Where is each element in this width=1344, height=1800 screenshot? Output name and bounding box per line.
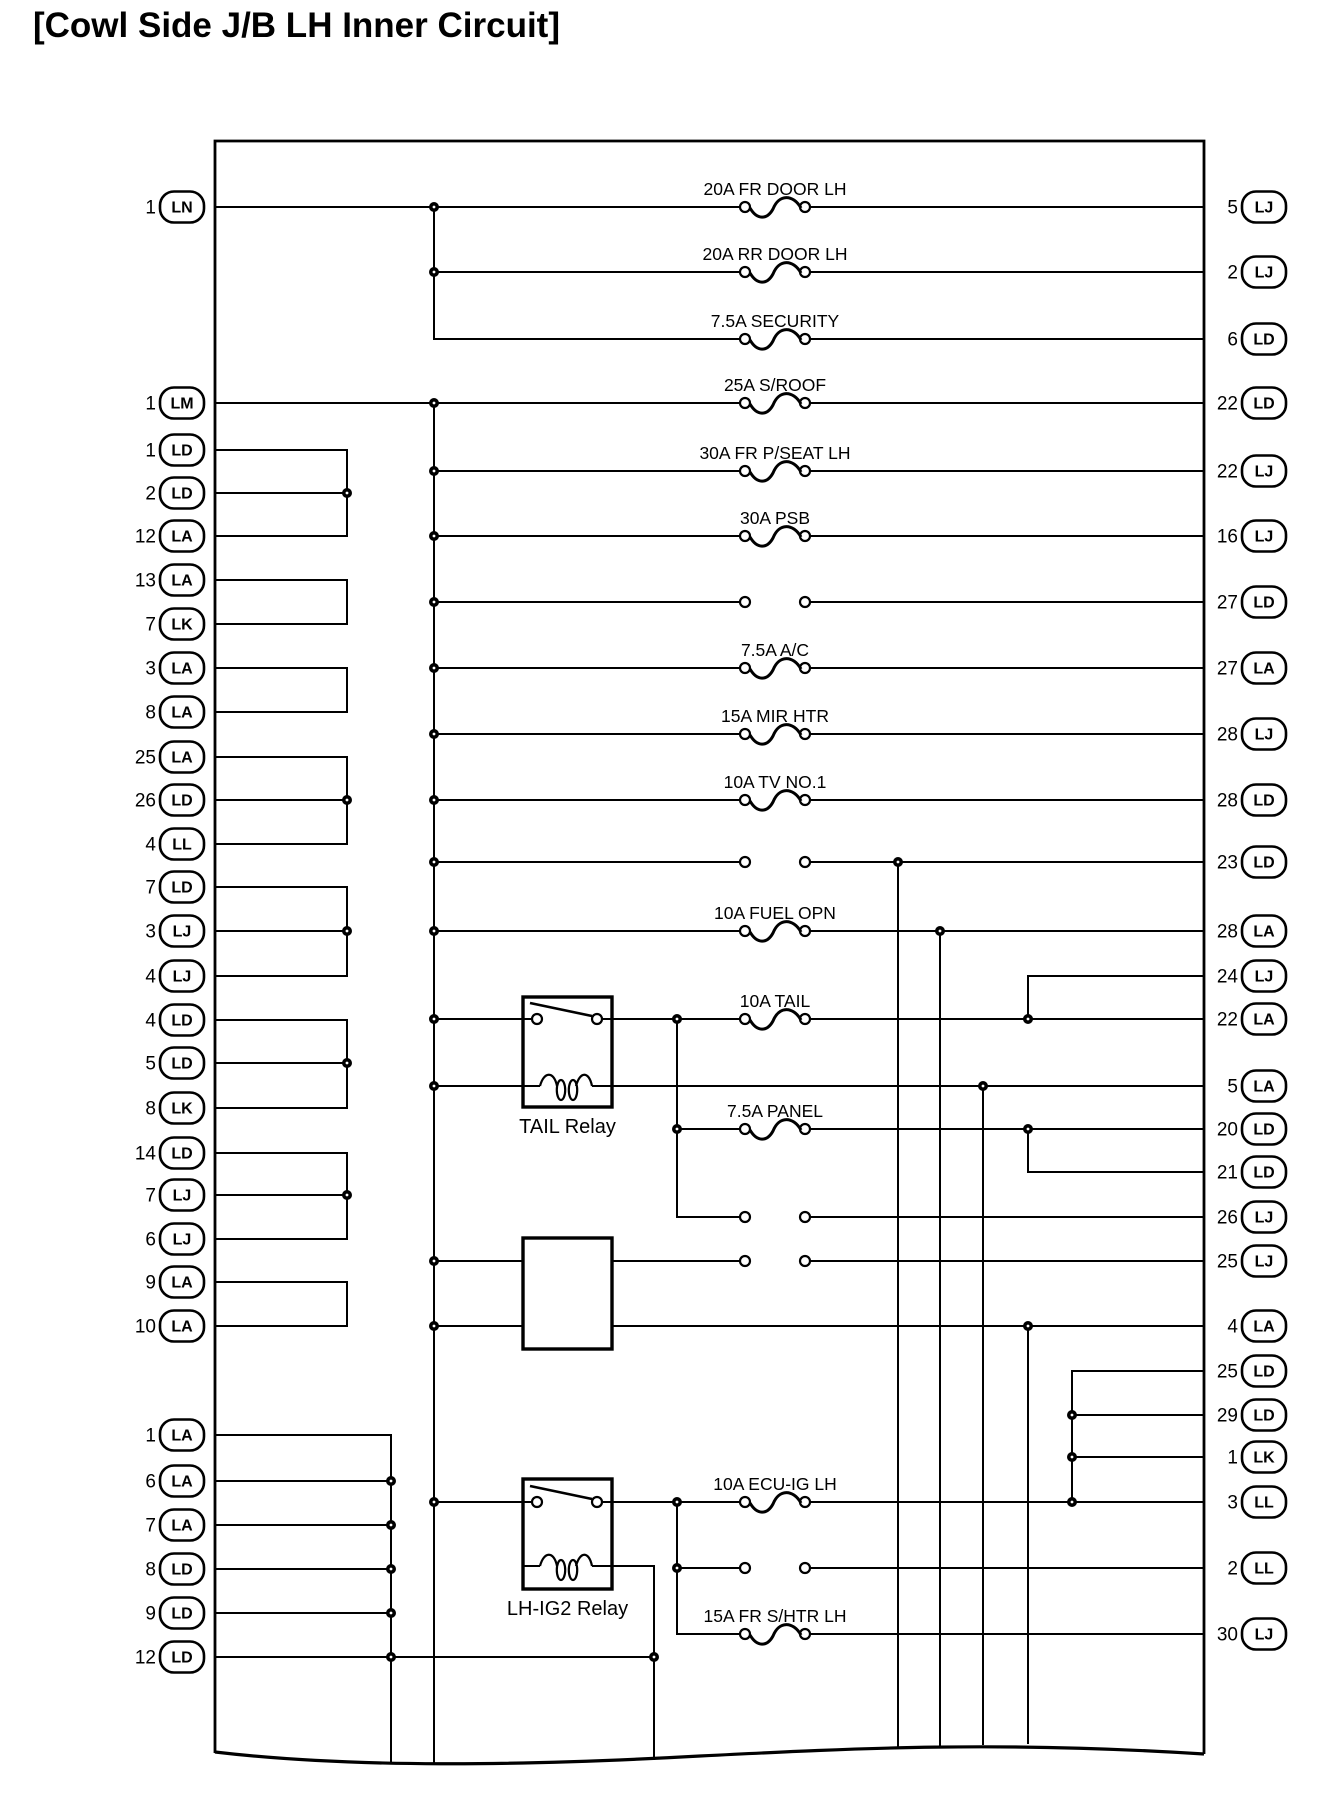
- connector-right-5-LJ: 5LJ: [1227, 192, 1286, 223]
- connector-left-7-LJ: 7LJ: [145, 1180, 204, 1211]
- junction-dot: [429, 1321, 439, 1331]
- connector-pin-number: 14: [135, 1144, 157, 1165]
- connector-code: LJ: [173, 1188, 192, 1205]
- connector-right-2-LJ: 2LJ: [1227, 257, 1286, 288]
- connector-right-1-LK: 1LK: [1227, 1442, 1286, 1473]
- junction-dot-center: [390, 1612, 393, 1615]
- connector-pin-number: 8: [145, 1099, 156, 1120]
- junction-dot: [429, 466, 439, 476]
- contact-circle: [740, 1563, 750, 1573]
- contact-circle: [800, 597, 810, 607]
- junction-dot-center: [676, 1501, 679, 1504]
- junction-dot: [649, 1652, 659, 1662]
- connector-code: LA: [171, 1474, 193, 1491]
- connector-code: LD: [1253, 1122, 1274, 1139]
- connector-left-12-LA: 12LA: [135, 521, 204, 552]
- junction-dot-center: [433, 733, 436, 736]
- junction-dot-center: [1027, 1018, 1030, 1021]
- fuse-element: [750, 1010, 801, 1030]
- contact-pair: [740, 1256, 810, 1266]
- contact-circle: [740, 1014, 750, 1024]
- connector-code: LA: [1253, 1079, 1275, 1096]
- connector-pin-number: 2: [145, 484, 156, 505]
- connector-pin-number: 28: [1217, 922, 1238, 943]
- connector-code: LJ: [1255, 200, 1274, 217]
- junction-dot: [1023, 1014, 1033, 1024]
- connector-code: LA: [1253, 661, 1275, 678]
- fuse-label: 25A S/ROOF: [724, 375, 826, 395]
- connector-pin-number: 7: [145, 1186, 156, 1207]
- fuse-element: [750, 1120, 801, 1140]
- junction-dot: [429, 857, 439, 867]
- connector-pin-number: 1: [145, 1426, 156, 1447]
- contact-circle: [740, 729, 750, 739]
- connector-pin-number: 7: [145, 615, 156, 636]
- connector-pin-number: 4: [1227, 1317, 1238, 1338]
- connector-code: LJ: [1255, 969, 1274, 986]
- connector-left-1-LN: 1LN: [145, 192, 204, 223]
- connector-left-1-LD: 1LD: [145, 435, 204, 466]
- connector-pin-number: 9: [145, 1604, 156, 1625]
- junction-dot: [429, 1256, 439, 1266]
- fuse-element: [750, 394, 801, 414]
- contact-circle: [740, 398, 750, 408]
- contact-circle: [740, 267, 750, 277]
- junction-dot-center: [433, 667, 436, 670]
- connector-left-8-LA: 8LA: [145, 697, 204, 728]
- connector-code: LD: [1253, 1165, 1274, 1182]
- connector-right-27-LD: 27LD: [1217, 587, 1286, 618]
- connector-right-22-LD: 22LD: [1217, 388, 1286, 419]
- junction-dot: [429, 398, 439, 408]
- connector-code: LA: [1253, 1012, 1275, 1029]
- junction-dot-center: [433, 206, 436, 209]
- connector-left-1-LM: 1LM: [145, 388, 204, 419]
- relay-lh-ig2-relay: LH-IG2 Relay: [507, 1479, 628, 1620]
- connector-code: LD: [1253, 332, 1274, 349]
- junction-block-torn-edge: [215, 1747, 1204, 1764]
- fuse: 10A TAIL: [740, 991, 811, 1029]
- connector-pin-number: 3: [145, 659, 156, 680]
- connector-right-16-LJ: 16LJ: [1217, 521, 1286, 552]
- connector-code: LJ: [1255, 727, 1274, 744]
- connector-code: LD: [171, 1650, 192, 1667]
- junction-dot-center: [897, 861, 900, 864]
- page: [Cowl Side J/B LH Inner Circuit] 20A FR …: [0, 0, 1344, 1800]
- connector-code: LD: [171, 443, 192, 460]
- junction-dot-center: [982, 1085, 985, 1088]
- connector-right-20-LD: 20LD: [1217, 1114, 1286, 1145]
- junction-dot: [429, 267, 439, 277]
- fuse-label: 7.5A PANEL: [727, 1101, 823, 1121]
- contact-circle: [740, 663, 750, 673]
- relay-coil-arc: [576, 1075, 592, 1086]
- connector-pin-number: 12: [135, 1648, 156, 1669]
- connector-left-7-LA: 7LA: [145, 1510, 204, 1541]
- relay-coil-arc: [576, 1555, 592, 1566]
- connector-code: LD: [1253, 595, 1274, 612]
- fuse-label: 10A FUEL OPN: [714, 903, 836, 923]
- connector-pin-number: 4: [145, 967, 156, 988]
- contact-pair: [740, 1212, 810, 1222]
- junction-dot-center: [433, 1018, 436, 1021]
- connector-right-3-LL: 3LL: [1227, 1487, 1286, 1518]
- connector-left-13-LA: 13LA: [135, 565, 204, 596]
- fuse-element: [750, 527, 801, 547]
- fuse-label: 10A TV NO.1: [724, 772, 827, 792]
- connector-right-28-LD: 28LD: [1217, 785, 1286, 816]
- junction-dot-center: [676, 1018, 679, 1021]
- relay-tail-relay: TAIL Relay: [519, 997, 616, 1138]
- junction-dot-center: [346, 1062, 349, 1065]
- fuse: 15A FR S/HTR LH: [704, 1606, 847, 1644]
- connector-pin-number: 21: [1217, 1163, 1238, 1184]
- connector-pin-number: 27: [1217, 659, 1238, 680]
- connector-code: LD: [171, 1056, 192, 1073]
- connector-code: LA: [171, 573, 193, 590]
- fuse: 10A ECU-IG LH: [713, 1474, 837, 1512]
- junction-dot: [386, 1564, 396, 1574]
- connector-pin-number: 5: [1227, 198, 1238, 219]
- fuse-element: [750, 198, 801, 218]
- relay-label: LH-IG2 Relay: [507, 1598, 628, 1620]
- contact-circle: [800, 1256, 810, 1266]
- fuse-label: 20A FR DOOR LH: [704, 179, 847, 199]
- connector-left-14-LD: 14LD: [135, 1138, 204, 1169]
- connector-code: LJ: [173, 969, 192, 986]
- connector-pin-number: 25: [1217, 1362, 1238, 1383]
- connector-pin-number: 25: [1217, 1252, 1238, 1273]
- connector-pin-number: 5: [1227, 1077, 1238, 1098]
- connector-pin-number: 4: [145, 835, 156, 856]
- connector-code: LL: [1254, 1495, 1274, 1512]
- connector-pin-number: 22: [1217, 462, 1238, 483]
- junction-dot: [672, 1497, 682, 1507]
- connector-code: LL: [172, 837, 192, 854]
- contact-circle: [740, 795, 750, 805]
- junction-dot: [1067, 1410, 1077, 1420]
- junction-dot-center: [390, 1480, 393, 1483]
- connector-pin-number: 1: [145, 394, 156, 415]
- junction-dot-center: [1027, 1325, 1030, 1328]
- connector-right-26-LJ: 26LJ: [1217, 1202, 1286, 1233]
- connector-left-4-LD: 4LD: [145, 1005, 204, 1036]
- fuse-element: [750, 263, 801, 283]
- junction-dot: [1067, 1452, 1077, 1462]
- connector-code: LJ: [1255, 265, 1274, 282]
- connector-right-22-LJ: 22LJ: [1217, 456, 1286, 487]
- connector-right-30-LJ: 30LJ: [1217, 1619, 1286, 1650]
- junction-dot: [672, 1563, 682, 1573]
- fuse-label: 10A ECU-IG LH: [713, 1474, 837, 1494]
- junction-dot: [429, 663, 439, 673]
- junction-dot-center: [433, 271, 436, 274]
- connector-code: LA: [171, 1518, 193, 1535]
- junction-dot: [386, 1476, 396, 1486]
- connector-pin-number: 6: [145, 1472, 156, 1493]
- connector-code: LK: [1253, 1450, 1275, 1467]
- connector-code: LD: [1253, 1364, 1274, 1381]
- junction-dot-center: [433, 601, 436, 604]
- fuse: 30A FR P/SEAT LH: [699, 443, 850, 481]
- relay-coil-loop: [557, 1080, 565, 1100]
- connector-pin-number: 5: [145, 1054, 156, 1075]
- connector-code: LA: [171, 750, 193, 767]
- junction-dot: [978, 1081, 988, 1091]
- connector-right-6-LD: 6LD: [1227, 324, 1286, 355]
- junction-dot-center: [346, 930, 349, 933]
- connector-pin-number: 23: [1217, 853, 1238, 874]
- fuse: 20A FR DOOR LH: [704, 179, 847, 217]
- fuse-element: [750, 462, 801, 482]
- relay-box: [523, 1238, 612, 1349]
- junction-dot: [342, 488, 352, 498]
- junction-dot: [1023, 1124, 1033, 1134]
- fuse-element: [750, 1493, 801, 1513]
- connector-pin-number: 12: [135, 527, 156, 548]
- contact-circle: [740, 466, 750, 476]
- connector-pin-number: 25: [135, 748, 156, 769]
- contact-pair: [740, 857, 810, 867]
- contact-circle: [740, 334, 750, 344]
- connector-left-25-LA: 25LA: [135, 742, 204, 773]
- connector-pin-number: 4: [145, 1011, 156, 1032]
- junction-dot: [342, 926, 352, 936]
- relay-box: [523, 1479, 612, 1589]
- connector-pin-number: 28: [1217, 791, 1238, 812]
- fuse-label: 20A RR DOOR LH: [703, 244, 848, 264]
- contact-circle: [740, 1124, 750, 1134]
- connector-code: LD: [171, 486, 192, 503]
- junction-dot-center: [433, 1325, 436, 1328]
- junction-dot: [429, 926, 439, 936]
- connector-left-9-LD: 9LD: [145, 1598, 204, 1629]
- contact-circle: [740, 202, 750, 212]
- connector-code: LJ: [1255, 464, 1274, 481]
- connector-code: LD: [171, 1013, 192, 1030]
- connector-left-6-LA: 6LA: [145, 1466, 204, 1497]
- connector-pin-number: 1: [145, 198, 156, 219]
- junction-dot-center: [390, 1524, 393, 1527]
- connector-left-6-LJ: 6LJ: [145, 1224, 204, 1255]
- connector-code: LA: [171, 1319, 193, 1336]
- contact-circle: [740, 1256, 750, 1266]
- connector-left-7-LD: 7LD: [145, 872, 204, 903]
- fuse: 10A TV NO.1: [724, 772, 827, 810]
- connector-code: LJ: [1255, 1210, 1274, 1227]
- connector-code: LA: [171, 661, 193, 678]
- connector-left-7-LK: 7LK: [145, 609, 204, 640]
- connector-left-10-LA: 10LA: [135, 1311, 204, 1342]
- junction-dot: [429, 795, 439, 805]
- relay-contact-circle: [592, 1497, 602, 1507]
- contact-circle: [740, 1497, 750, 1507]
- connector-right-2-LL: 2LL: [1227, 1553, 1286, 1584]
- connector-code: LD: [171, 880, 192, 897]
- junction-block-outline: [215, 141, 1204, 1754]
- connector-right-28-LJ: 28LJ: [1217, 719, 1286, 750]
- connector-pin-number: 29: [1217, 1406, 1238, 1427]
- connector-code: LA: [171, 1428, 193, 1445]
- relay-label: TAIL Relay: [519, 1116, 616, 1138]
- connector-pin-number: 26: [135, 791, 156, 812]
- junction-dot: [386, 1608, 396, 1618]
- connector-right-22-LA: 22LA: [1217, 1004, 1286, 1035]
- connector-pin-number: 24: [1217, 967, 1239, 988]
- connector-right-23-LD: 23LD: [1217, 847, 1286, 878]
- connector-left-4-LJ: 4LJ: [145, 961, 204, 992]
- junction-dot-center: [676, 1128, 679, 1131]
- junction-dot-center: [433, 1085, 436, 1088]
- connector-code: LA: [171, 705, 193, 722]
- fuse: 7.5A SECURITY: [711, 311, 840, 349]
- fuse-label: 30A FR P/SEAT LH: [699, 443, 850, 463]
- circuit-svg: 20A FR DOOR LH20A RR DOOR LH7.5A SECURIT…: [0, 0, 1344, 1800]
- connector-code: LK: [171, 617, 193, 634]
- relay-coil-loop: [557, 1560, 565, 1580]
- connector-code: LK: [171, 1101, 193, 1118]
- connector-pin-number: 2: [1227, 263, 1238, 284]
- connector-code: LA: [171, 529, 193, 546]
- connector-pin-number: 27: [1217, 593, 1238, 614]
- junction-dot: [386, 1520, 396, 1530]
- junction-dot-center: [939, 930, 942, 933]
- fuse-label: 30A PSB: [740, 508, 810, 528]
- junction-dot: [893, 857, 903, 867]
- connector-code: LD: [1253, 396, 1274, 413]
- connector-left-12-LD: 12LD: [135, 1642, 204, 1673]
- connector-pin-number: 1: [1227, 1448, 1238, 1469]
- fuse-label: 7.5A A/C: [741, 640, 809, 660]
- connector-left-26-LD: 26LD: [135, 785, 204, 816]
- connector-pin-number: 7: [145, 1516, 156, 1537]
- fuse-label: 15A MIR HTR: [721, 706, 829, 726]
- junction-dot-center: [433, 799, 436, 802]
- contact-circle: [740, 531, 750, 541]
- junction-dot: [386, 1652, 396, 1662]
- connector-right-5-LA: 5LA: [1227, 1071, 1286, 1102]
- fuse: 10A FUEL OPN: [714, 903, 836, 941]
- contact-pair: [740, 1563, 810, 1573]
- contact-circle: [740, 1629, 750, 1639]
- relay-contact-circle: [532, 1497, 542, 1507]
- junction-dot-center: [433, 535, 436, 538]
- contact-circle: [800, 1563, 810, 1573]
- connector-right-27-LA: 27LA: [1217, 653, 1286, 684]
- connector-pin-number: 2: [1227, 1559, 1238, 1580]
- unlabeled-block: [523, 1238, 612, 1349]
- connector-code: LD: [1253, 793, 1274, 810]
- junction-dot: [429, 1014, 439, 1024]
- junction-dot-center: [433, 1501, 436, 1504]
- junction-dot-center: [390, 1656, 393, 1659]
- connector-code: LD: [1253, 855, 1274, 872]
- junction-dot: [429, 1497, 439, 1507]
- junction-dot: [672, 1124, 682, 1134]
- relay-contact-circle: [532, 1014, 542, 1024]
- connector-code: LA: [1253, 1319, 1275, 1336]
- connector-code: LJ: [173, 1232, 192, 1249]
- contact-circle: [800, 857, 810, 867]
- fuse-element: [750, 725, 801, 745]
- connector-pin-number: 8: [145, 703, 156, 724]
- connector-code: LJ: [173, 924, 192, 941]
- connector-pin-number: 7: [145, 878, 156, 899]
- fuse-element: [750, 922, 801, 942]
- connector-right-29-LD: 29LD: [1217, 1400, 1286, 1431]
- contact-circle: [740, 857, 750, 867]
- connector-pin-number: 16: [1217, 527, 1238, 548]
- connector-pin-number: 26: [1217, 1208, 1238, 1229]
- fuse-label: 15A FR S/HTR LH: [704, 1606, 847, 1626]
- connector-left-2-LD: 2LD: [145, 478, 204, 509]
- contact-circle: [740, 1212, 750, 1222]
- connector-code: LJ: [1255, 1627, 1274, 1644]
- junction-dot-center: [346, 1194, 349, 1197]
- junction-dot-center: [1071, 1456, 1074, 1459]
- junction-dot-center: [433, 402, 436, 405]
- connector-pin-number: 13: [135, 571, 156, 592]
- connector-code: LA: [1253, 924, 1275, 941]
- fuse-element: [750, 791, 801, 811]
- junction-dot: [429, 729, 439, 739]
- connector-pin-number: 8: [145, 1560, 156, 1581]
- fuse: 7.5A A/C: [740, 640, 810, 678]
- junction-dot: [935, 926, 945, 936]
- junction-dot: [342, 1190, 352, 1200]
- fuse: 30A PSB: [740, 508, 810, 546]
- fuse-label: 10A TAIL: [740, 991, 811, 1011]
- junction-dot-center: [653, 1656, 656, 1659]
- connector-right-28-LA: 28LA: [1217, 916, 1286, 947]
- fuse-element: [750, 330, 801, 350]
- fuse-element: [750, 1625, 801, 1645]
- connector-code: LN: [171, 200, 192, 217]
- junction-dot: [342, 795, 352, 805]
- connector-right-25-LD: 25LD: [1217, 1356, 1286, 1387]
- fuse-element: [750, 659, 801, 679]
- junction-dot-center: [1071, 1414, 1074, 1417]
- connector-right-4-LA: 4LA: [1227, 1311, 1286, 1342]
- connector-pin-number: 10: [135, 1317, 156, 1338]
- connector-left-5-LD: 5LD: [145, 1048, 204, 1079]
- fuse: 20A RR DOOR LH: [703, 244, 848, 282]
- junction-dot-center: [346, 492, 349, 495]
- connector-pin-number: 20: [1217, 1120, 1238, 1141]
- connector-code: LD: [171, 793, 192, 810]
- junction-dot: [429, 1081, 439, 1091]
- fuse-label: 7.5A SECURITY: [711, 311, 840, 331]
- junction-dot-center: [433, 1260, 436, 1263]
- connector-pin-number: 28: [1217, 725, 1238, 746]
- connector-code: LD: [1253, 1408, 1274, 1425]
- connector-pin-number: 6: [145, 1230, 156, 1251]
- junction-dot-center: [676, 1567, 679, 1570]
- junction-dot: [672, 1014, 682, 1024]
- junction-dot-center: [433, 930, 436, 933]
- connector-pin-number: 30: [1217, 1625, 1238, 1646]
- connector-left-3-LJ: 3LJ: [145, 916, 204, 947]
- connector-code: LA: [171, 1275, 193, 1292]
- relay-contact-circle: [592, 1014, 602, 1024]
- connector-pin-number: 3: [145, 922, 156, 943]
- connector-code: LM: [170, 396, 193, 413]
- fuse: 7.5A PANEL: [727, 1101, 823, 1139]
- junction-dot: [429, 531, 439, 541]
- connector-pin-number: 22: [1217, 1010, 1238, 1031]
- junction-dot: [1067, 1497, 1077, 1507]
- junction-dot: [342, 1058, 352, 1068]
